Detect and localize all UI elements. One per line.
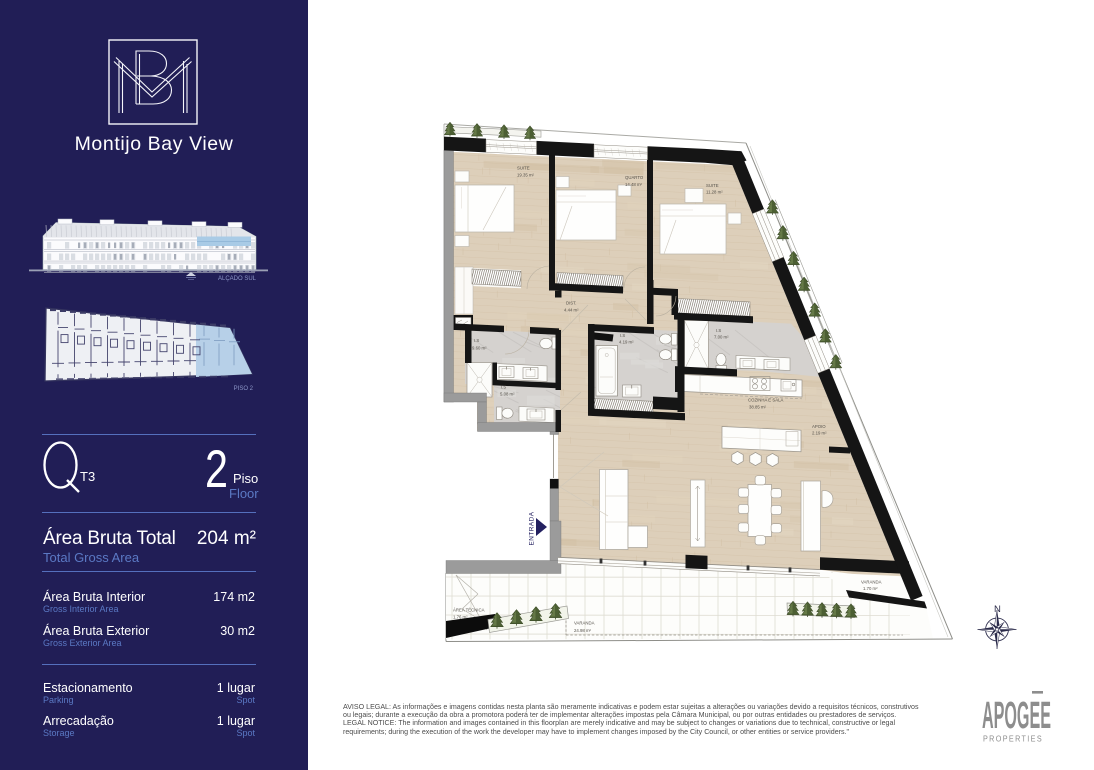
svg-text:ENTRADA: ENTRADA [529, 511, 536, 545]
svg-text:24.98 m²: 24.98 m² [574, 628, 592, 633]
svg-text:I.S: I.S [620, 333, 625, 338]
svg-text:I.S: I.S [501, 385, 506, 390]
svg-text:APOIO: APOIO [812, 424, 826, 429]
svg-text:N: N [994, 604, 1001, 615]
svg-text:VARANDA: VARANDA [861, 580, 882, 585]
svg-text:19.35 m²: 19.35 m² [517, 173, 535, 178]
svg-text:COZINHA E SALA: COZINHA E SALA [748, 398, 783, 403]
svg-text:ALÇADO SUL: ALÇADO SUL [218, 276, 257, 282]
svg-text:SUITE: SUITE [706, 183, 719, 188]
svg-text:APOGEE: APOGEE [982, 694, 1051, 736]
svg-text:PROPERTIES: PROPERTIES [983, 735, 1043, 744]
svg-text:38.85 m²: 38.85 m² [749, 405, 767, 410]
svg-text:11.28 m²: 11.28 m² [706, 190, 723, 195]
svg-text:14.48 m²: 14.48 m² [625, 182, 643, 187]
svg-text:PISO 2: PISO 2 [234, 386, 254, 392]
svg-text:7.00 m²: 7.00 m² [714, 335, 729, 340]
svg-text:2.19 m²: 2.19 m² [812, 431, 827, 436]
svg-text:DIST.: DIST. [566, 301, 577, 306]
svg-text:ÁREA TÉCNICA: ÁREA TÉCNICA [453, 608, 485, 613]
svg-text:9.60 m²: 9.60 m² [472, 346, 487, 351]
svg-text:5.08 m²: 5.08 m² [500, 392, 515, 397]
svg-text:SUITE: SUITE [517, 166, 530, 171]
svg-text:VARANDA: VARANDA [574, 621, 595, 626]
svg-text:4.44 m²: 4.44 m² [564, 308, 579, 313]
svg-text:I.S: I.S [474, 338, 479, 343]
svg-text:1.76 m²: 1.76 m² [453, 615, 468, 620]
svg-text:QUARTO: QUARTO [625, 175, 644, 180]
svg-text:4.19 m²: 4.19 m² [619, 340, 634, 345]
svg-text:1.70 m²: 1.70 m² [863, 586, 878, 591]
svg-text:I.S: I.S [716, 328, 721, 333]
